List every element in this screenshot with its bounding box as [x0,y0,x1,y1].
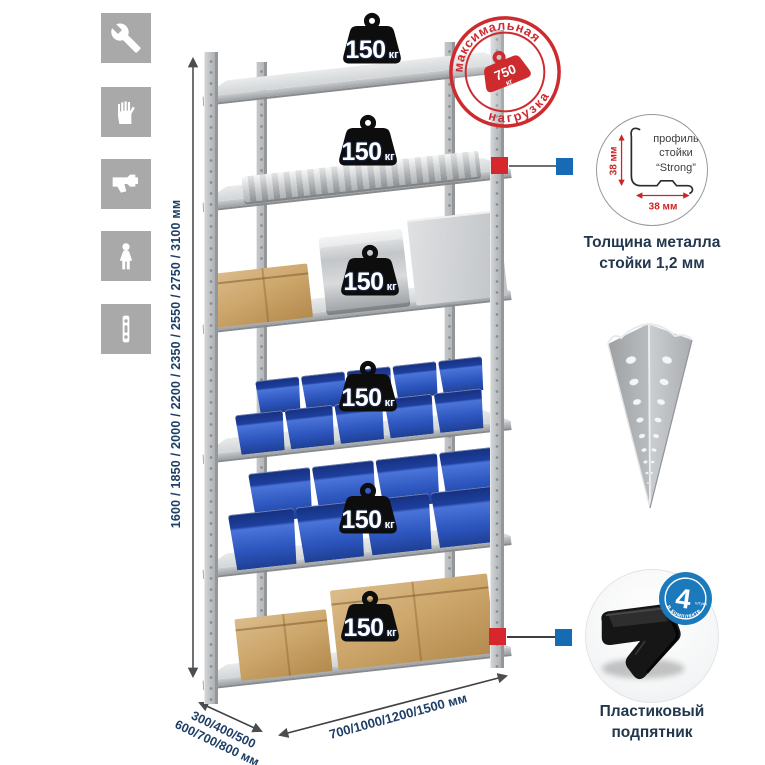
load-unit: кг [387,281,397,293]
load-value: 150 [341,506,381,534]
metal-thickness-caption: Толщина металла стойки 1,2 мм [566,233,738,275]
profile-label-line1: профиль [649,132,703,146]
drill-icon-tile [101,159,151,209]
callout-marker-red-bottom [489,628,506,645]
person-icon-tile [101,231,151,281]
profile-label-line3: “Strong” [649,161,703,175]
drill-icon [110,168,142,200]
profile-dimension-vertical: 38 мм [609,147,620,176]
included-count-badge: 4 штуки в комплекте [658,571,713,626]
corner-post-image [598,312,703,522]
max-load-stamp: максимальная нагрузка 750 кг [446,13,564,131]
height-dimension-label: 1600 / 1850 / 2000 / 2200 / 2350 / 2550 … [169,200,183,529]
callout-marker-blue-top [556,158,573,175]
metal-thickness-line1: Толщина металла [566,233,738,254]
callout-marker-red-top [491,157,508,174]
load-unit: кг [385,397,395,409]
storage-bin [228,508,300,571]
metal-thickness-line2: стойки 1,2 мм [566,254,738,275]
callout-marker-blue-bottom [555,629,572,646]
rack-post-front-left [204,52,218,704]
plastic-foot-caption: Пластиковый подпятник [572,702,732,744]
storage-bin [434,388,486,433]
shelf-load-weight-6: 150кг [324,590,416,651]
profile-label: профиль стойки “Strong” [649,132,703,175]
load-unit: кг [389,49,399,61]
load-unit: кг [385,519,395,531]
load-unit: кг [387,627,397,639]
perforated-strip-icon-tile [101,304,151,354]
profile-label-line2: стойки [649,146,703,160]
wrench-icon-tile [101,13,151,63]
cardboard-box [212,263,313,327]
load-unit: кг [385,151,395,163]
perforated-strip-icon [110,313,142,345]
plastic-foot-caption-line1: Пластиковый [572,702,732,723]
gloves-icon [110,96,142,128]
wrench-icon [110,22,142,54]
storage-bin [235,410,287,455]
plastic-foot-caption-line2: подпятник [572,723,732,744]
rack-post-rear-right [444,42,455,652]
shelf-load-weight-5: 150кг [322,482,414,543]
profile-dimension-horizontal: 38 мм [649,202,678,213]
cardboard-box [234,609,332,681]
load-value: 150 [345,36,385,64]
post-profile-detail: профиль стойки “Strong” 38 мм 38 мм [596,114,708,226]
load-value: 150 [343,614,383,642]
shelf-load-weight-2: 150кг [322,114,414,175]
product-infographic: 1600 / 1850 / 2000 / 2200 / 2350 / 2550 … [0,0,765,765]
shelf-load-weight-3: 150кг [324,244,416,305]
load-value: 150 [341,384,381,412]
width-dimension-label: 700/1000/1200/1500 мм [327,690,468,742]
shelf-load-weight-1: 150кг [326,12,418,73]
person-icon [110,240,142,272]
gloves-icon-tile [101,87,151,137]
load-value: 150 [341,138,381,166]
depth-dimension-label: 300/400/500 600/700/800 мм [172,704,267,765]
shelf-load-weight-4: 150кг [322,360,414,421]
load-value: 150 [343,268,383,296]
